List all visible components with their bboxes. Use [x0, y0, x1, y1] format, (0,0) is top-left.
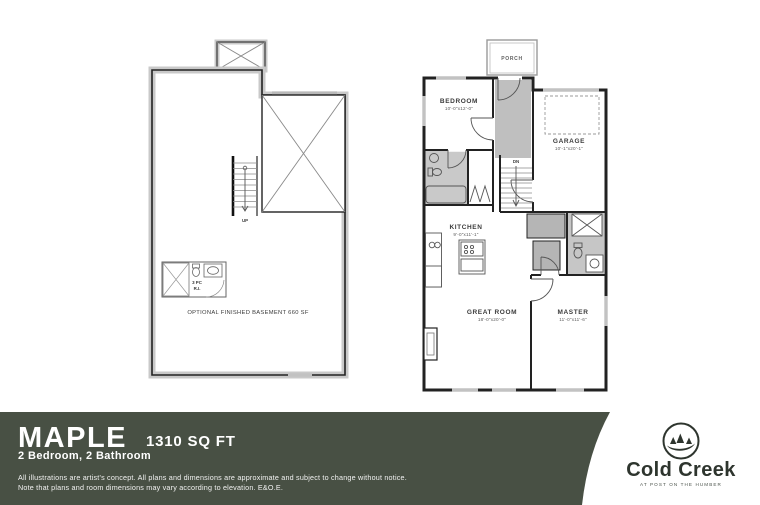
main-porch: PORCH [487, 40, 537, 75]
garage-pad [545, 96, 599, 134]
brand-logo-icon [664, 424, 699, 459]
kitchen-dims: 9'-0"x11'-1" [453, 232, 478, 237]
brand-wordmark: Cold Creek [626, 459, 736, 481]
footer-curve: Cold Creek AT POST ON THE HUMBER [0, 412, 760, 505]
sink-icon [429, 242, 435, 248]
main-bath-shade [425, 151, 468, 204]
sink-icon [435, 242, 441, 248]
main-stairs: DN [501, 159, 532, 208]
master-dims: 11'-0"x11'-6" [559, 317, 587, 322]
closet-bifold-doors [470, 186, 490, 202]
basement-stairs-label: UP [242, 218, 248, 223]
kitchen-label: KITCHEN [449, 224, 482, 231]
fireplace [424, 328, 437, 360]
basement-bath-label-1: 3 PC [192, 280, 203, 285]
basement-porch-footing [217, 42, 265, 70]
fridge-icon [426, 266, 442, 287]
kitchen-fixtures [426, 233, 486, 287]
basement-note: OPTIONAL FINISHED BASEMENT 660 SF [187, 310, 309, 316]
master-label: MASTER [557, 309, 588, 316]
brand-tagline: AT POST ON THE HUMBER [640, 482, 722, 487]
basement-plan: UP 3 PC R.I. OPTIONAL FINISHED BASEMENT … [152, 42, 345, 375]
garage-label: GARAGE [553, 138, 585, 145]
kitchen-island [459, 240, 485, 274]
great-room-dims: 18'-0"x20'-0" [478, 317, 506, 322]
garage-dims: 10'-1"x20'-1" [555, 146, 583, 151]
floor-plans-canvas: UP 3 PC R.I. OPTIONAL FINISHED BASEMENT … [0, 0, 760, 412]
footer-band: MAPLE 1310 SQ FT 2 Bedroom, 2 Bathroom A… [0, 412, 760, 505]
bedroom-label: BEDROOM [440, 98, 478, 105]
closet-1 [527, 214, 565, 238]
basement-unexcavated-area [262, 93, 345, 212]
great-room-label: GREAT ROOM [467, 309, 517, 316]
main-stairs-label: DN [513, 159, 519, 164]
bedroom-dims: 10'-0"x12'-0" [445, 106, 473, 111]
basement-bath-label-2: R.I. [194, 286, 201, 291]
basement-bath-rough-in: 3 PC R.I. [162, 262, 226, 297]
foyer-shade [495, 80, 531, 158]
main-floor-plan: PORCH [424, 40, 606, 390]
porch-label: PORCH [501, 56, 523, 62]
